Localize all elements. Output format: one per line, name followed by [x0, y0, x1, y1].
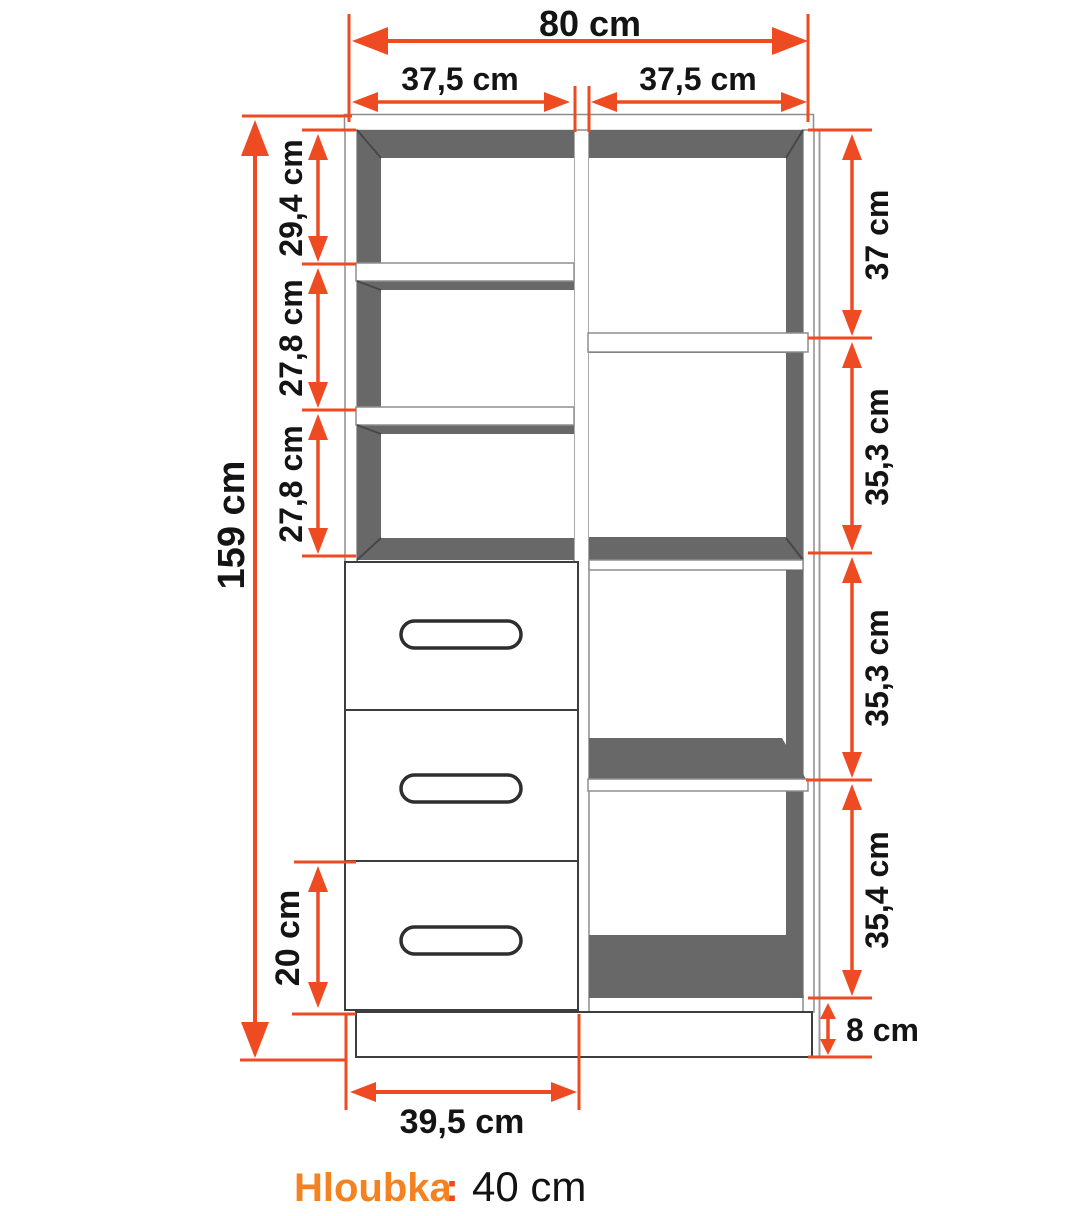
- left-shelf-unit: [356, 130, 574, 560]
- dim-plinth-height: 8 cm: [820, 1003, 919, 1055]
- right-lower-bottom-face: [589, 935, 804, 998]
- arrowhead-up: [308, 134, 328, 160]
- right-compartment-2: [589, 353, 786, 537]
- arrowhead-left: [350, 1082, 376, 1102]
- cabinet-top-panel: [345, 115, 814, 131]
- dim-bottom-drawer-height: 20 cm: [269, 862, 356, 1014]
- left-compartment-1: [381, 158, 574, 263]
- depth-note: Hloubka : 40 cm: [294, 1163, 586, 1210]
- arrowhead-up: [842, 134, 862, 160]
- left-shelf-board-2: [356, 407, 574, 425]
- arrowhead-up: [308, 414, 328, 440]
- arrowhead-down: [820, 1039, 836, 1055]
- dim-label-right-column-width: 37,5 cm: [639, 61, 756, 97]
- dim-label-right-sec2: 35,3 cm: [859, 388, 895, 505]
- dim-label-left-sec1: 29,4 cm: [273, 139, 309, 256]
- arrowhead-down: [842, 525, 862, 551]
- dim-label-right-sec3: 35,3 cm: [859, 609, 895, 726]
- arrowhead-down: [308, 236, 328, 262]
- arrowhead-down: [842, 970, 862, 996]
- dim-label-drawer-width: 39,5 cm: [400, 1103, 525, 1141]
- cabinet-right-side-panel: [803, 130, 814, 1012]
- cabinet-drawing: [345, 115, 820, 1058]
- depth-colon: :: [445, 1166, 458, 1210]
- arrowhead-up: [241, 120, 269, 156]
- arrowhead-up: [842, 342, 862, 368]
- right-shelf-unit: [588, 130, 808, 560]
- dim-label-total-width: 80 cm: [539, 3, 641, 44]
- dim-label-bottom-drawer-height: 20 cm: [269, 890, 307, 986]
- arrowhead-down: [842, 752, 862, 778]
- arrowhead-up: [842, 557, 862, 583]
- arrowhead-down: [308, 382, 328, 408]
- arrowhead-up: [308, 866, 328, 892]
- arrowhead-down: [241, 1022, 269, 1058]
- cabinet-dimension-diagram: 80 cm 37,5 cm 37,5 cm 159 cm 29,4 cm: [0, 0, 1083, 1216]
- arrowhead-up: [842, 784, 862, 810]
- dim-label-left-sec2: 27,8 cm: [273, 279, 309, 396]
- arrowhead-up: [820, 1003, 836, 1019]
- drawer-1-handle-icon: [401, 621, 521, 648]
- arrowhead-right: [551, 1082, 577, 1102]
- arrowhead-right: [772, 27, 808, 55]
- arrowhead-up: [308, 268, 328, 294]
- dim-left-sections: 29,4 cm 27,8 cm 27,8 cm: [273, 130, 356, 556]
- drawer-2-handle-icon: [401, 775, 521, 802]
- furniture-dimension-diagram-page: 80 cm 37,5 cm 37,5 cm 159 cm 29,4 cm: [0, 0, 1083, 1216]
- dim-label-right-sec4: 35,4 cm: [859, 831, 895, 948]
- arrowhead-left: [352, 27, 388, 55]
- right-lower-top-board: [589, 560, 803, 570]
- right-lower-shelf-front-edge: [588, 779, 808, 791]
- left-shelf-board-1: [356, 263, 574, 281]
- right-lower-unit: [588, 560, 808, 998]
- arrowhead-down: [308, 528, 328, 554]
- arrowhead-down: [308, 982, 328, 1008]
- right-compartment-1: [589, 158, 786, 333]
- depth-label: Hloubka: [294, 1166, 453, 1210]
- right-lower-shelf-top-face: [589, 738, 806, 779]
- drawer-stack: [345, 562, 578, 1010]
- arrowhead-right: [781, 92, 807, 112]
- dim-label-left-column-width: 37,5 cm: [401, 61, 518, 97]
- drawer-3-handle-icon: [401, 927, 521, 954]
- left-compartment-3: [381, 434, 574, 538]
- cabinet-plinth: [356, 1012, 812, 1057]
- depth-value: 40 cm: [472, 1163, 586, 1210]
- right-shelf-board-1: [588, 333, 808, 352]
- left-compartment-2: [381, 290, 574, 407]
- arrowhead-right: [544, 92, 570, 112]
- arrowhead-left: [352, 92, 378, 112]
- dim-label-total-height: 159 cm: [211, 461, 253, 590]
- dim-label-left-sec3: 27,8 cm: [273, 425, 309, 542]
- dim-label-right-sec1: 37 cm: [859, 190, 895, 281]
- arrowhead-left: [591, 92, 617, 112]
- cabinet-left-side-panel: [345, 130, 357, 562]
- dim-label-plinth-height: 8 cm: [846, 1012, 919, 1048]
- arrowhead-down: [842, 310, 862, 336]
